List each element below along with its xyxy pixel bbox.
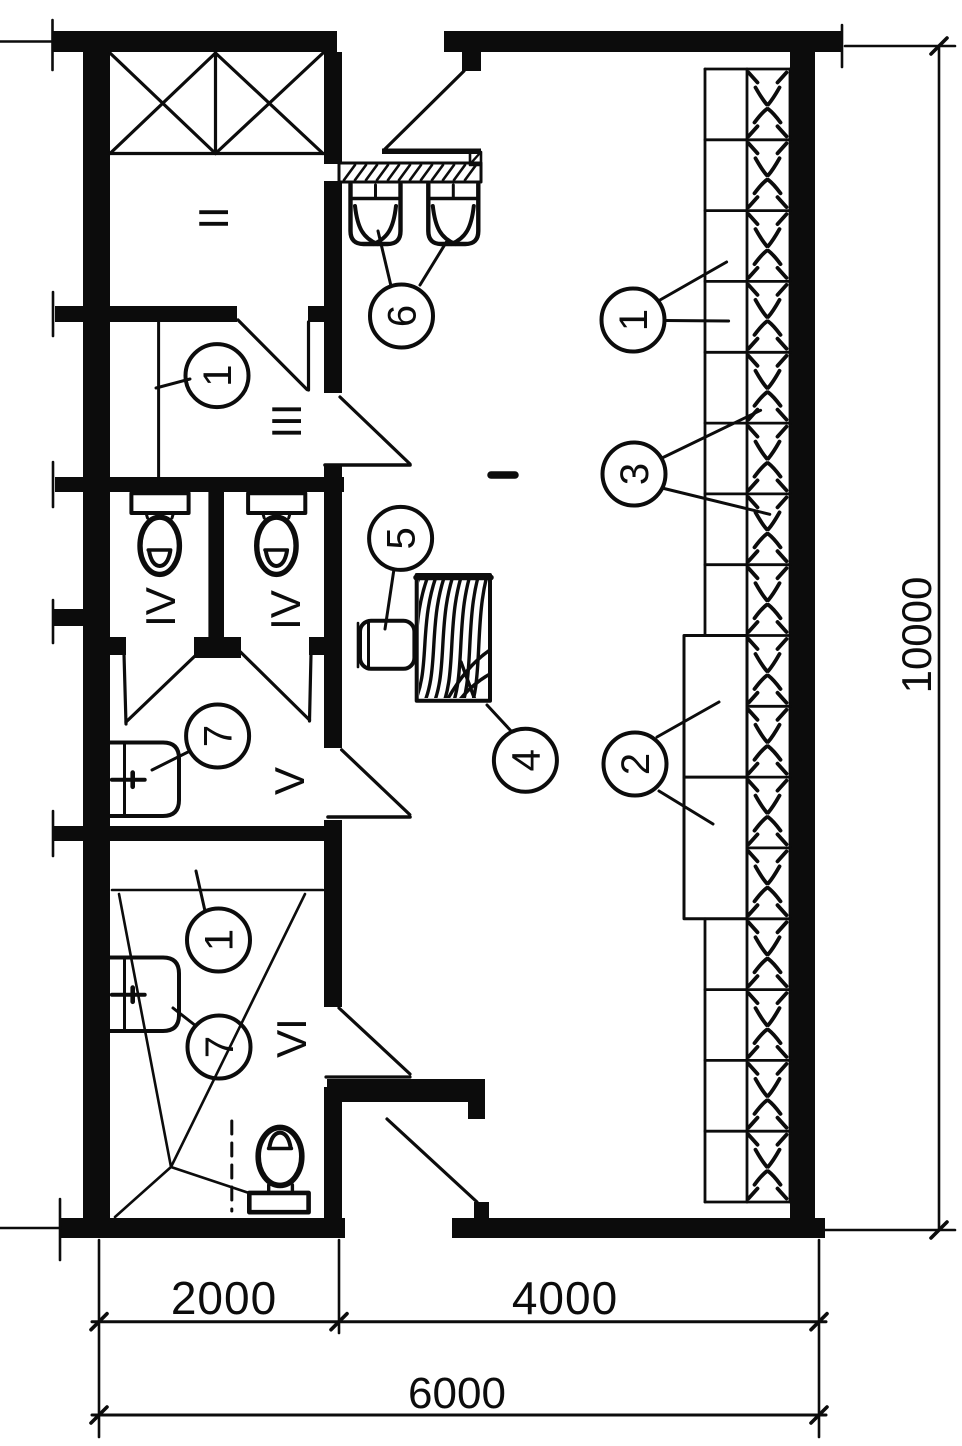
svg-text:10000: 10000 [893,577,940,694]
svg-text:4: 4 [504,749,548,771]
svg-text:III: III [263,403,310,438]
svg-text:2000: 2000 [171,1272,277,1324]
svg-text:IV: IV [262,590,309,630]
svg-text:7: 7 [197,725,241,747]
svg-text:V: V [266,767,313,795]
svg-text:VI: VI [268,1018,315,1058]
svg-text:6000: 6000 [408,1369,506,1418]
svg-text:1: 1 [198,929,242,951]
svg-text:2: 2 [614,753,658,775]
svg-text:7: 7 [198,1036,242,1058]
svg-text:6: 6 [381,305,425,327]
svg-text:4000: 4000 [512,1272,618,1324]
svg-text:1: 1 [196,364,240,386]
svg-text:3: 3 [613,463,657,485]
svg-text:II: II [190,206,237,229]
svg-text:IV: IV [137,587,184,627]
svg-text:1: 1 [612,309,656,331]
svg-text:5: 5 [380,527,424,549]
